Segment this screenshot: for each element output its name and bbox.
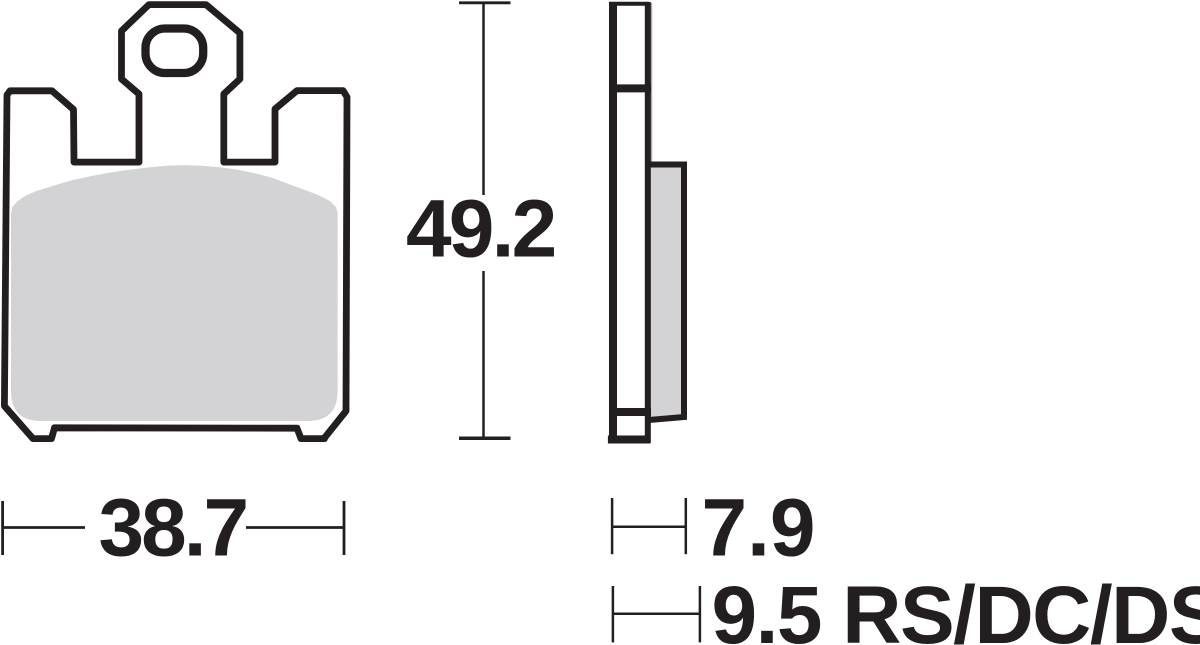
svg-text:49.2: 49.2 xyxy=(406,184,555,275)
svg-text:7.9: 7.9 xyxy=(702,483,816,574)
svg-text:9.5 RS/DC/DS: 9.5 RS/DC/DS xyxy=(712,570,1200,645)
svg-text:38.7: 38.7 xyxy=(99,483,247,574)
